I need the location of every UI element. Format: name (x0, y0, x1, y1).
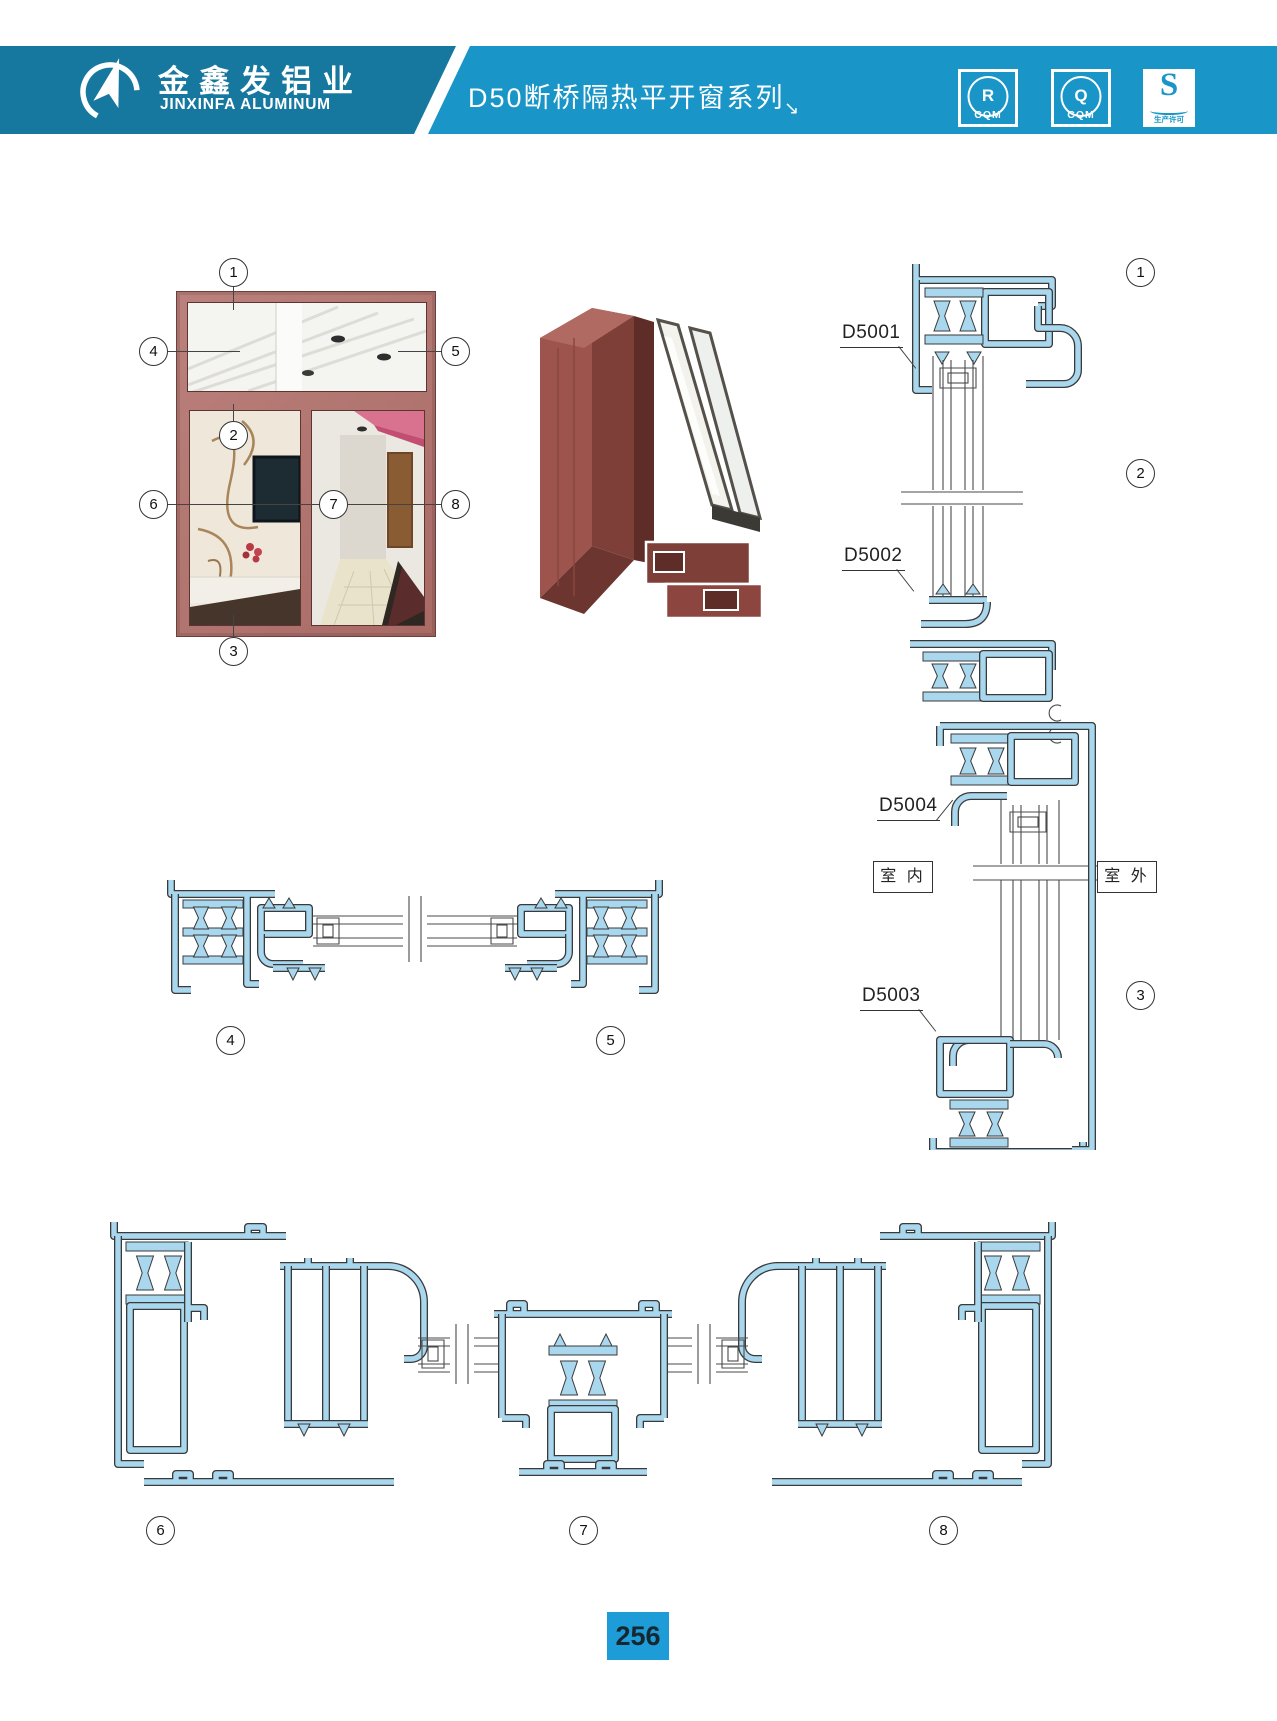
leader-line-6-7 (167, 504, 319, 505)
cert-badge-q-cqm: Q CQM (1051, 69, 1111, 127)
leader-line-4 (167, 351, 240, 352)
cert-badge-qs-license: S 生产许可 (1143, 69, 1195, 127)
vertical-section-drawing (755, 240, 1175, 1150)
header-band: 金鑫发铝业 JINXINFA ALUMINUM D50断桥隔热平开窗系列 ↘ R… (0, 46, 1277, 134)
section-callout-1: 1 (1126, 258, 1155, 287)
callout-circle-7: 7 (319, 490, 348, 519)
mid-right-jamb-sash (505, 880, 659, 990)
brand-name-cn: 金鑫发铝业 (158, 56, 363, 101)
company-logo-icon (72, 52, 148, 128)
cert-caption: CQM (1054, 109, 1108, 121)
catalog-page: 金鑫发铝业 JINXINFA ALUMINUM D50断桥隔热平开窗系列 ↘ R… (0, 0, 1277, 1721)
brand-name-en: JINXINFA ALUMINUM (160, 96, 331, 114)
cert-symbol: S (1143, 67, 1195, 104)
section-callout-6: 6 (146, 1516, 175, 1545)
callout-circle-1: 1 (219, 258, 248, 287)
window-lite-transom (187, 302, 427, 392)
cert-caption: CQM (961, 109, 1015, 121)
cert-caption: 生产许可 (1143, 114, 1195, 125)
cert-badge-r-cqm: R CQM (958, 69, 1018, 127)
bottom-glass-unit (418, 1324, 498, 1384)
leader-line-2 (233, 404, 234, 421)
title-arrow-icon: ↘ (784, 98, 799, 119)
callout-circle-6: 6 (139, 490, 168, 519)
indoor-label: 室 内 (873, 861, 933, 893)
horizontal-section-bottom (100, 1210, 1180, 1510)
transom-cluster (940, 726, 1092, 826)
profile-label-d5003: D5003 (860, 985, 923, 1011)
corner-profile-3d-render (528, 296, 763, 641)
bottom-right-half (583, 1222, 1052, 1482)
callout-circle-8: 8 (441, 490, 470, 519)
section-callout-3: 3 (1126, 981, 1155, 1010)
outdoor-label: 室 外 (1097, 861, 1157, 893)
callout-circle-5: 5 (441, 337, 470, 366)
profile-label-d5004: D5004 (877, 795, 940, 821)
leader-line-7-8 (347, 504, 441, 505)
leader-line-3 (233, 615, 234, 637)
profile-label-d5001: D5001 (840, 322, 903, 348)
mid-left-jamb-sash (171, 880, 325, 990)
center-mullion-block (519, 1334, 647, 1472)
section-callout-2: 2 (1126, 459, 1155, 488)
horizontal-section-top (155, 868, 675, 1038)
page-number-badge: 256 (607, 1612, 669, 1660)
leader-line-1 (233, 286, 234, 310)
scene-ceiling (188, 303, 426, 391)
callout-circle-2: 2 (219, 421, 248, 450)
leader-line-5 (398, 351, 441, 352)
section-callout-5: 5 (596, 1026, 625, 1055)
mid-glass-unit (313, 896, 517, 962)
callout-circle-3: 3 (219, 637, 248, 666)
window-photo-figure (176, 291, 436, 637)
section-callout-7: 7 (569, 1516, 598, 1545)
bottom-left-half (114, 1222, 583, 1482)
callout-circle-4: 4 (139, 337, 168, 366)
section-callout-4: 4 (216, 1026, 245, 1055)
page-title: D50断桥隔热平开窗系列 (468, 76, 785, 115)
section-callout-8: 8 (929, 1516, 958, 1545)
lower-glass-unit (973, 800, 1103, 1040)
profile-label-d5002: D5002 (842, 545, 905, 571)
middle-sash-frame-cluster (910, 584, 1061, 743)
